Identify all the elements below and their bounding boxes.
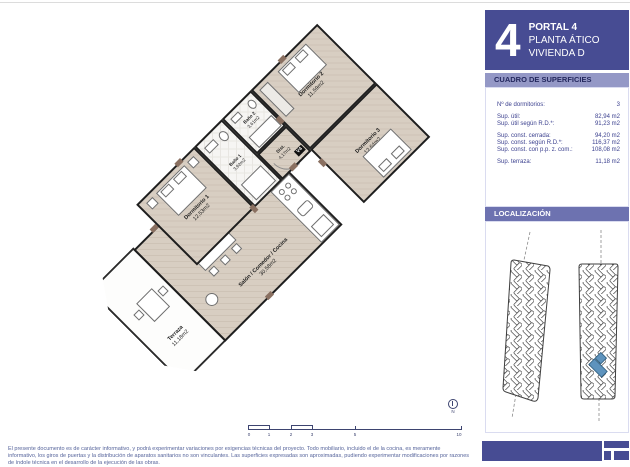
round-table — [203, 290, 221, 308]
scale-tick-label: 1 — [268, 432, 271, 437]
scale-tick-label: 5 — [354, 432, 357, 437]
stove-burner — [290, 187, 298, 195]
bathroom-sink — [230, 111, 243, 124]
portal-label: PORTAL 4 — [529, 21, 600, 34]
bed — [362, 128, 411, 177]
footer-bar — [482, 441, 602, 461]
surfaces-table: Nº de dormitorios: 3 Sup. útil: 82,94 m2… — [485, 87, 629, 207]
scale-tick-label: 10 — [456, 432, 461, 437]
fridge — [311, 214, 334, 237]
table-row: Sup. const. cerrada: 94,20 m2 — [486, 133, 628, 140]
table-row: Nº de dormitorios: 3 — [486, 102, 628, 109]
disclaimer-text: El presente documento es de carácter inf… — [8, 446, 470, 467]
vivienda-label: VIVIENDA D — [529, 47, 600, 60]
toilet — [246, 98, 259, 111]
room-label: Baño 1 3,92m2 — [221, 146, 254, 179]
portal-number: 4 — [495, 17, 521, 63]
planta-label: PLANTA ÁTICO — [529, 34, 600, 47]
surfaces-title: CUADRO DE SUPERFICIES — [485, 73, 629, 87]
table-row: Sup. terraza: 11,18 m2 — [486, 159, 628, 166]
stove-burner — [283, 193, 291, 201]
scale-tick-label: 2 — [290, 432, 293, 437]
chair — [208, 266, 219, 277]
developer-logo — [604, 441, 630, 461]
room-label: Terraza 11,18m2 — [152, 309, 206, 363]
entry-marker: V4 — [294, 145, 306, 157]
unit-header: 4 PORTAL 4 PLANTA ÁTICO VIVIENDA D — [485, 10, 629, 70]
scale-segment — [291, 425, 313, 430]
scale-bar: 0 1 2 3 5 10 — [248, 422, 462, 440]
bathroom-sink — [204, 139, 219, 154]
chair — [220, 254, 231, 265]
site-map-svg — [486, 222, 628, 432]
table-row: Sup. const. con p.p. z. com.: 108,08 m2 — [486, 147, 628, 154]
floor-plan: Terraza 11,18m2 Salón / Comedor / Cocina… — [0, 0, 482, 465]
nightstand — [187, 156, 200, 169]
scale-tick-label: 0 — [248, 432, 251, 437]
nightstand — [146, 197, 159, 210]
scale-tick-label: 3 — [311, 432, 314, 437]
toilet — [217, 129, 231, 143]
kitchen-counter — [271, 174, 340, 243]
chair — [231, 243, 242, 254]
info-sidebar: 4 PORTAL 4 PLANTA ÁTICO VIVIENDA D CUADR… — [482, 0, 630, 465]
site-location-map — [485, 221, 629, 433]
apartment-plan: Terraza 11,18m2 Salón / Comedor / Cocina… — [70, 24, 431, 385]
localizacion-title: LOCALIZACIÓN — [485, 207, 629, 221]
north-arrow-icon: N — [447, 399, 459, 414]
scale-segment — [248, 425, 270, 430]
table-row: Sup. útil: 82,94 m2 — [486, 114, 628, 121]
table-row: Sup. const. según R.D.*: 116,37 m2 — [486, 140, 628, 147]
table-row: Sup. útil según R.D.*: 91,23 m2 — [486, 121, 628, 128]
kitchen-sink — [296, 199, 314, 217]
